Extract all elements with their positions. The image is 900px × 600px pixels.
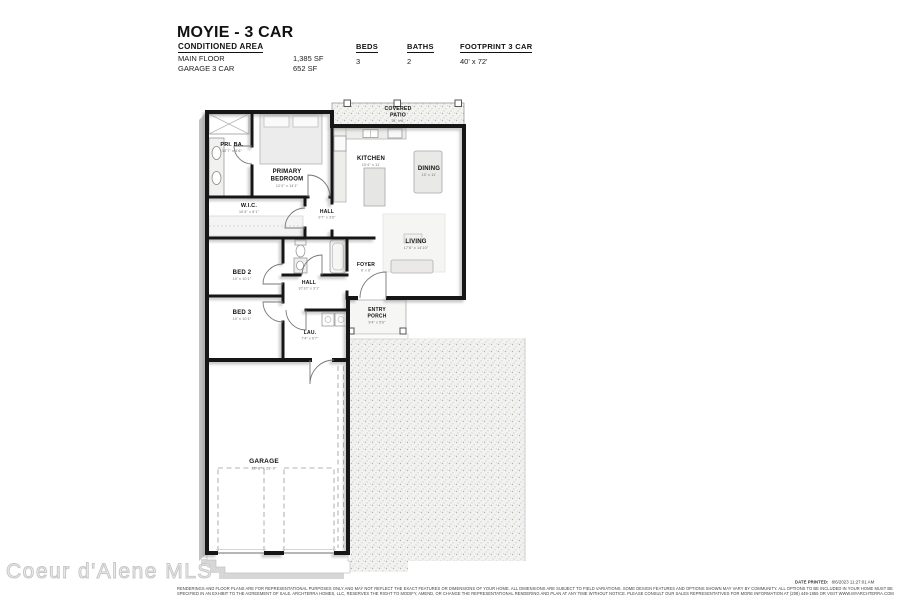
room-label-primary-bedroom: PRIMARY [273,169,302,175]
bathtub-icon [330,240,346,273]
room-label-bed2: BED 2 [233,270,252,276]
room-label-foyer: FOYER [357,262,375,268]
room-dims-kitchen: 10'4" x 11' [362,163,380,167]
mls-watermark: Coeur d'Alene MLS [6,560,213,584]
room-dims-primary-bedroom: 12'4" x 14'1" [276,184,299,188]
room-label-living: LIVING [405,239,426,245]
room-label-kitchen: KITCHEN [357,156,385,162]
bed-icon [260,114,322,164]
room-dims-pri-ba: 10'7" x 5'6" [222,149,243,153]
date-printed-label: DATE PRINTED: [795,580,828,585]
bath-vanity-icon [294,258,307,273]
room-label-dining: DINING [418,166,440,172]
room-label-bed3: BED 3 [233,310,252,316]
date-printed-value: 8/6/2023 11:27:01 AM [832,580,875,585]
room-label-laundry: LAU. [304,330,317,336]
room-dims-garage: 22'-8" x 28'-9" [251,467,277,471]
room-dims-covered-patio: 21' x 6' [392,119,405,123]
linen-closet-icon [209,114,249,134]
closet-shelves-icon [209,216,303,236]
room-label-primary-bedroom: BEDROOM [271,177,304,183]
room-label-covered-patio: COVERED [384,106,411,112]
room-label-hall-lower: HALL [302,280,316,286]
room-label-entry-porch: PORCH [367,314,386,320]
room-label-entry-porch: ENTRY [368,307,386,313]
room-dims-wic: 10'4" x 6'1" [239,210,260,214]
room-label-hall-upper: HALL [320,209,334,215]
disclaimer-line-2: SPECIFIED IN AN EXHIBIT TO THE AGREEMENT… [177,592,897,597]
fridge-icon [334,136,346,151]
patio-post-icon [455,100,462,107]
stove-icon [388,129,402,138]
room-dims-entry-porch: 9'4" x 5'6" [368,321,386,325]
room-label-garage: GARAGE [249,458,279,465]
date-printed: DATE PRINTED:8/6/2023 11:27:01 AM [795,580,874,585]
room-dims-hall-upper: 9'7" x 3'6" [318,216,336,220]
footer-fine-print: RENDERINGS AND FLOOR PLANS ARE FOR REPRE… [177,587,897,596]
room-label-wic: W.I.C. [241,203,257,209]
kitchen-island-icon [364,168,385,206]
patio-post-icon [344,100,351,107]
room-dims-bed3: 10' x 10'1" [233,317,252,321]
room-dims-living: 17'8" x 14'10" [404,246,429,250]
dining-table-icon [414,151,442,193]
toilet-icon [295,240,306,257]
room-dims-hall-lower: 10'10" x 3'1" [298,287,320,291]
driveway [350,338,525,572]
room-label-pri-ba: PRI. BA. [220,142,244,148]
garage-apron [207,553,350,573]
floorplan-drawing: COVERED PATIO 21' x 6' PRI. BA. 10'7" x … [0,0,900,600]
room-dims-bed2: 10' x 10'1" [233,277,252,281]
room-label-covered-patio: PATIO [390,113,406,119]
room-dims-laundry: 7'4" x 6'7" [301,337,319,341]
entry-porch [346,300,408,339]
porch-post-icon [400,328,406,334]
room-dims-foyer: 6' x 6' [361,269,371,273]
room-dims-dining: 10' x 11' [422,173,437,177]
